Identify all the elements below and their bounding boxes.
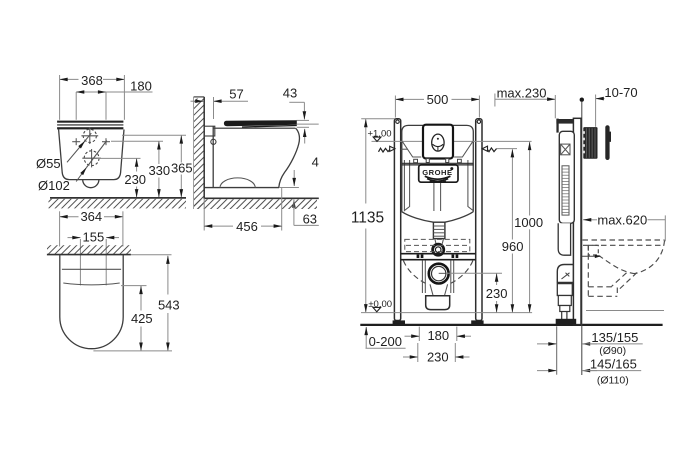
svg-text:330: 330: [148, 163, 170, 178]
svg-text:1000: 1000: [514, 215, 543, 230]
svg-text:230: 230: [124, 172, 146, 187]
svg-text:155: 155: [83, 229, 105, 244]
svg-text:(Ø90): (Ø90): [599, 345, 626, 357]
svg-text:456: 456: [236, 219, 258, 234]
svg-text:43: 43: [283, 86, 297, 101]
svg-text:57: 57: [229, 87, 243, 102]
svg-text:960: 960: [502, 239, 524, 254]
svg-text:max.230: max.230: [497, 85, 547, 100]
svg-text:Ø55: Ø55: [36, 156, 61, 171]
svg-text:230: 230: [486, 286, 508, 301]
svg-text:max.620: max.620: [597, 212, 647, 227]
svg-text:180: 180: [427, 328, 449, 343]
svg-text:63: 63: [303, 211, 317, 226]
svg-text:425: 425: [131, 311, 153, 326]
svg-text:(Ø110): (Ø110): [597, 375, 629, 387]
svg-text:230: 230: [427, 349, 449, 364]
svg-text:368: 368: [81, 73, 103, 88]
svg-text:543: 543: [158, 298, 180, 313]
svg-text:365: 365: [171, 160, 193, 175]
svg-text:364: 364: [80, 209, 102, 224]
svg-text:145/165: 145/165: [590, 357, 637, 372]
svg-text:4: 4: [312, 155, 319, 170]
svg-text:500: 500: [427, 92, 449, 107]
svg-text:10-70: 10-70: [604, 85, 637, 100]
svg-text:1135: 1135: [351, 210, 384, 227]
svg-text:0-200: 0-200: [369, 334, 402, 349]
svg-text:GROHE: GROHE: [422, 168, 452, 177]
svg-text:135/155: 135/155: [591, 330, 638, 345]
svg-text:180: 180: [130, 78, 152, 93]
svg-text:Ø102: Ø102: [38, 178, 70, 193]
